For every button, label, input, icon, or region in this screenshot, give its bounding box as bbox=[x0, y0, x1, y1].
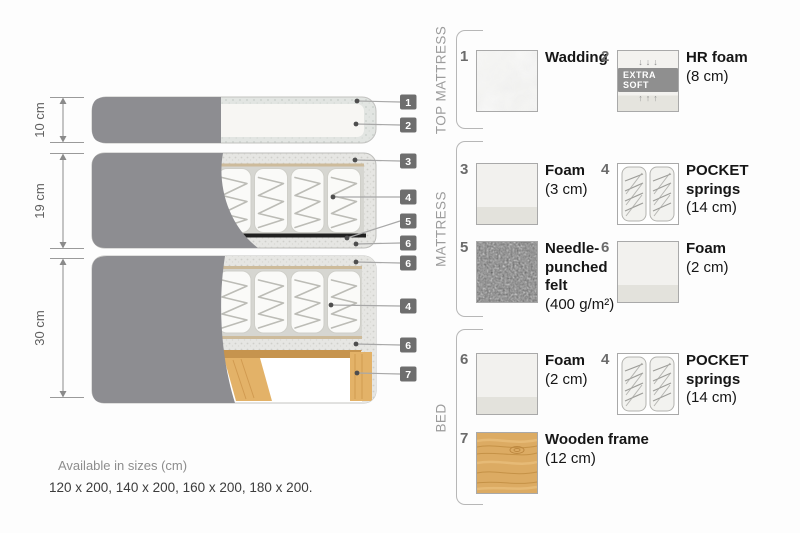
felt-swatch bbox=[476, 241, 538, 303]
item-name: Wooden frame bbox=[545, 431, 649, 448]
item-detail: (14 cm) bbox=[686, 199, 764, 218]
group-label-mattress: MATTRESS bbox=[434, 191, 449, 267]
item-name: Foam bbox=[686, 240, 726, 257]
wadding-swatch bbox=[476, 50, 538, 112]
down-arrows-icon: ↓↓↓ bbox=[635, 57, 661, 67]
item-number: 1 bbox=[460, 48, 474, 65]
item-name: Foam bbox=[545, 352, 585, 369]
legend: TOP MATTRESS MATTRESS BED 1 Wadding bbox=[0, 0, 800, 533]
item-number: 4 bbox=[601, 161, 615, 178]
legend-item-pocket-springs: 4 POCKET springs (14 cm) bbox=[601, 161, 771, 227]
item-name: HR foam bbox=[686, 49, 748, 66]
item-number: 5 bbox=[460, 239, 474, 256]
wooden-frame-swatch bbox=[476, 432, 538, 494]
item-detail: (14 cm) bbox=[686, 389, 764, 408]
item-number: 3 bbox=[460, 161, 474, 178]
legend-item-pocket-springs-bed: 4 POCKET springs (14 cm) bbox=[601, 351, 771, 417]
item-number: 6 bbox=[601, 239, 615, 256]
legend-item-wooden-frame: 7 Wooden frame (12 cm) bbox=[460, 430, 630, 496]
item-name: POCKET springs bbox=[686, 162, 749, 198]
item-name: Foam bbox=[545, 162, 585, 179]
item-detail: (2 cm) bbox=[686, 259, 764, 278]
item-name: POCKET springs bbox=[686, 352, 749, 388]
foam-swatch bbox=[476, 163, 538, 225]
item-number: 4 bbox=[601, 351, 615, 368]
group-label-bed: BED bbox=[434, 404, 449, 433]
pocket-springs-swatch bbox=[617, 163, 679, 225]
hr-foam-swatch: ↓↓↓ EXTRA SOFT ↑↑↑ bbox=[617, 50, 679, 112]
item-detail: (8 cm) bbox=[686, 68, 764, 87]
item-name: Needle-punched felt bbox=[545, 240, 608, 294]
item-number: 2 bbox=[601, 48, 615, 65]
group-label-top-mattress: TOP MATTRESS bbox=[434, 26, 449, 134]
foam-swatch bbox=[476, 353, 538, 415]
pocket-springs-swatch bbox=[617, 353, 679, 415]
legend-item-hr-foam: 2 ↓↓↓ EXTRA SOFT ↑↑↑ HR foam (8 cm) bbox=[601, 48, 771, 114]
item-number: 6 bbox=[460, 351, 474, 368]
foam-swatch bbox=[617, 241, 679, 303]
up-arrows-icon: ↑↑↑ bbox=[635, 93, 661, 103]
item-detail: (12 cm) bbox=[545, 450, 715, 469]
item-number: 7 bbox=[460, 430, 474, 447]
bed-construction-infographic: 10 cm 19 cm 30 cm bbox=[0, 0, 800, 533]
extra-soft-badge: EXTRA SOFT bbox=[618, 68, 678, 92]
item-name: Wadding bbox=[545, 49, 608, 66]
legend-item-foam-2cm: 6 Foam (2 cm) bbox=[601, 239, 771, 305]
